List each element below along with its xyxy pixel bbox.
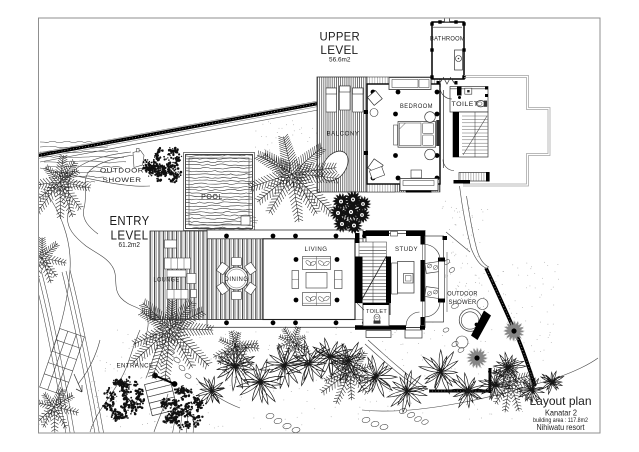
svg-text:STUDY: STUDY	[395, 246, 418, 253]
svg-text:UPPER: UPPER	[320, 30, 361, 44]
svg-text:LEVEL: LEVEL	[320, 43, 358, 57]
svg-text:LIVING: LIVING	[305, 246, 328, 253]
svg-text:TOILET: TOILET	[452, 101, 479, 108]
svg-text:Layout plan: Layout plan	[530, 394, 592, 408]
svg-text:LOUNGE: LOUNGE	[154, 277, 180, 284]
svg-text:POOL: POOL	[201, 194, 223, 201]
svg-text:ENTRY: ENTRY	[110, 213, 150, 228]
svg-text:BALCONY: BALCONY	[327, 131, 360, 138]
svg-text:56.6m2: 56.6m2	[329, 57, 351, 64]
svg-text:BATHROOM: BATHROOM	[430, 36, 465, 43]
svg-text:DINING: DINING	[225, 276, 249, 283]
svg-text:OUTDOOR: OUTDOOR	[447, 291, 478, 298]
svg-text:LEVEL: LEVEL	[111, 228, 149, 243]
svg-text:61.2m2: 61.2m2	[119, 242, 141, 249]
svg-text:OUTDOOR: OUTDOOR	[100, 168, 144, 175]
svg-text:Kanatar 2: Kanatar 2	[545, 408, 577, 418]
svg-text:SHOWER: SHOWER	[103, 177, 142, 184]
svg-text:SHOWER: SHOWER	[449, 299, 477, 306]
svg-text:TOILET: TOILET	[366, 309, 387, 315]
svg-text:Nihiwatu resort: Nihiwatu resort	[537, 422, 586, 432]
svg-text:BEDROOM: BEDROOM	[400, 103, 433, 110]
